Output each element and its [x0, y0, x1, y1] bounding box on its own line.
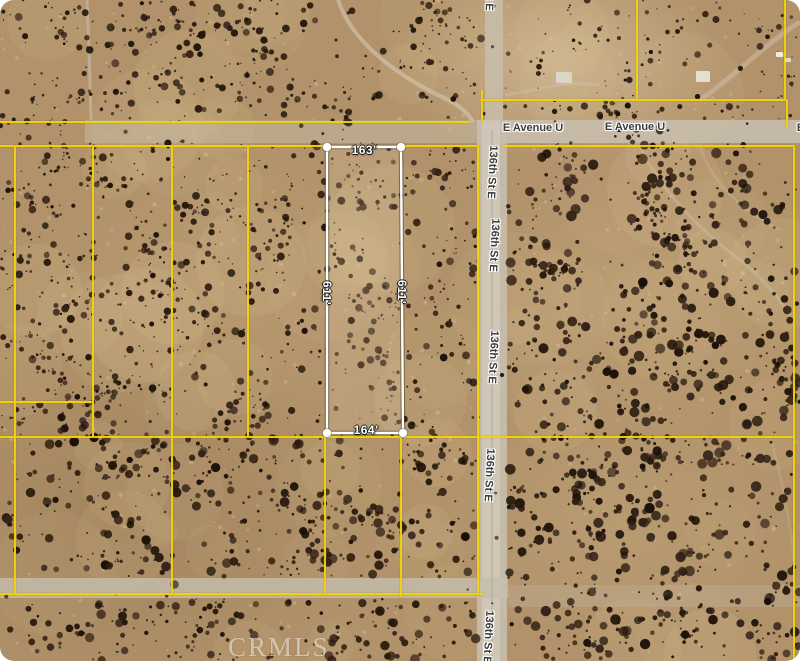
- listing-photo-stage: 163' 164' 611' 611' E Avenue U E Avenue …: [0, 0, 800, 661]
- parcel-dim-left: 611': [320, 281, 335, 306]
- street-label-5: 136th St E: [481, 610, 496, 661]
- parcel-dim-bottom: 164': [354, 423, 379, 437]
- street-label-1: 136th St E: [485, 145, 500, 199]
- avenue-label-2: E Avenue U: [605, 121, 665, 133]
- satellite-map: 163' 164' 611' 611' E Avenue U E Avenue …: [0, 0, 800, 661]
- street-label-3: 136th St E: [486, 330, 501, 384]
- parcel-dim-top: 163': [352, 143, 377, 157]
- avenue-label-1: E Avenue U: [503, 122, 563, 134]
- street-label-4: 136th St E: [482, 448, 497, 502]
- map-labels: 163' 164' 611' 611' E Avenue U E Avenue …: [0, 0, 800, 661]
- crmls-watermark: CRMLS: [228, 632, 330, 661]
- street-label-2: 136th St E: [487, 218, 502, 272]
- street-label-partial-top: 136th St E: [483, 0, 498, 11]
- parcel-dim-right: 611': [395, 280, 410, 305]
